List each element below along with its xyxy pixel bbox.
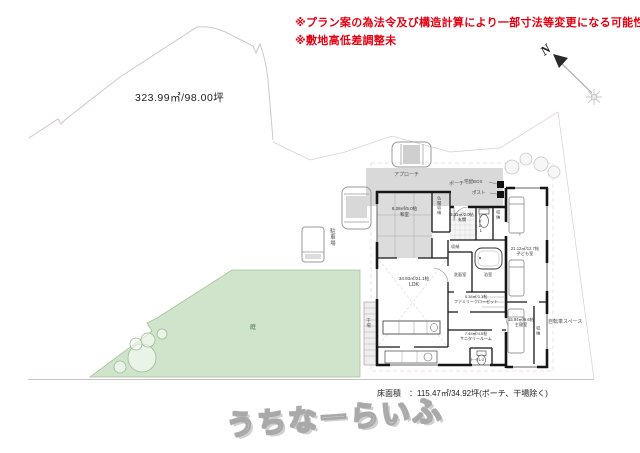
room-bedroom-closet: 収納 [536, 326, 541, 335]
post-label: ポスト [472, 190, 486, 196]
drying-area [364, 302, 377, 365]
room-bathroom: 浴室 [476, 272, 500, 277]
porch-label: ポーチ [449, 181, 464, 187]
site-outline [29, 27, 273, 140]
room-kids-name: 子ども室 [502, 251, 548, 256]
car-icon-top [392, 142, 431, 167]
room-kids: 21.12㎡/12.7帖 子ども室 [502, 246, 548, 257]
room-genkan-name: 玄関 [444, 217, 480, 222]
floorplan-page: ※プラン案の為法令及び構造計算により一部寸法等変更になる可能性有 ※敷地高低差調… [0, 0, 640, 453]
room-family-closet: 5.38㎡/3.3帖 ファミリークローゼット [446, 294, 506, 304]
room-washitsu: 8.28㎡/5.0帖 和室 [377, 206, 432, 217]
room-washitsu-name: 和室 [377, 212, 432, 218]
bathtub-icon [475, 248, 502, 269]
bed-icons [508, 197, 524, 353]
bush-icons [505, 153, 560, 178]
room-washroom-closet: 収納 [451, 244, 459, 249]
truck-icon [302, 227, 324, 262]
delivery-box-label: 宅配BOX [464, 179, 483, 185]
room-toilet2: トイレ2 [470, 357, 484, 362]
room-ldk: 34.93㎡/21.1帖 LDK [383, 276, 445, 288]
approach-label: アプローチ [394, 172, 419, 178]
notice-line1: ※プラン案の為法令及び構造計算により一部寸法等変更になる可能性有 [295, 17, 640, 31]
compass-icon [553, 54, 602, 105]
tatami-grid [377, 193, 432, 258]
laundry-counter [385, 351, 437, 363]
room-family-closet-name: ファミリークローゼット [446, 299, 506, 304]
notice-line2: ※敷地高低差調整未 [295, 35, 396, 49]
bicycle-space-label: 自転車スペース [548, 319, 582, 325]
room-ldk-name: LDK [383, 282, 445, 288]
site-area-label: 323.99㎡/98.00坪 [135, 92, 224, 105]
compass-needle [553, 54, 568, 68]
room-genkan: 3.31㎡/2.0帖 玄関 [444, 212, 480, 223]
room-toilet1: トイレ1 [478, 214, 483, 234]
parking-label: 駐車場 [328, 228, 335, 246]
compass-star [586, 89, 602, 105]
kitchen-counter [383, 321, 440, 334]
room-butsudan-closet: 仏間収納 [437, 196, 442, 215]
room-hall-closet: 収納 [496, 210, 501, 219]
room-sanitary: 7.45㎡/4.5帖 サニタリールーム [446, 331, 506, 341]
room-sanitary-name: サニタリールーム [446, 336, 506, 341]
plan-drawing [0, 0, 640, 453]
room-washroom: 洗面室 [448, 272, 472, 277]
garden-label: 庭 [250, 325, 256, 333]
drying-label: 干場 [366, 318, 372, 328]
